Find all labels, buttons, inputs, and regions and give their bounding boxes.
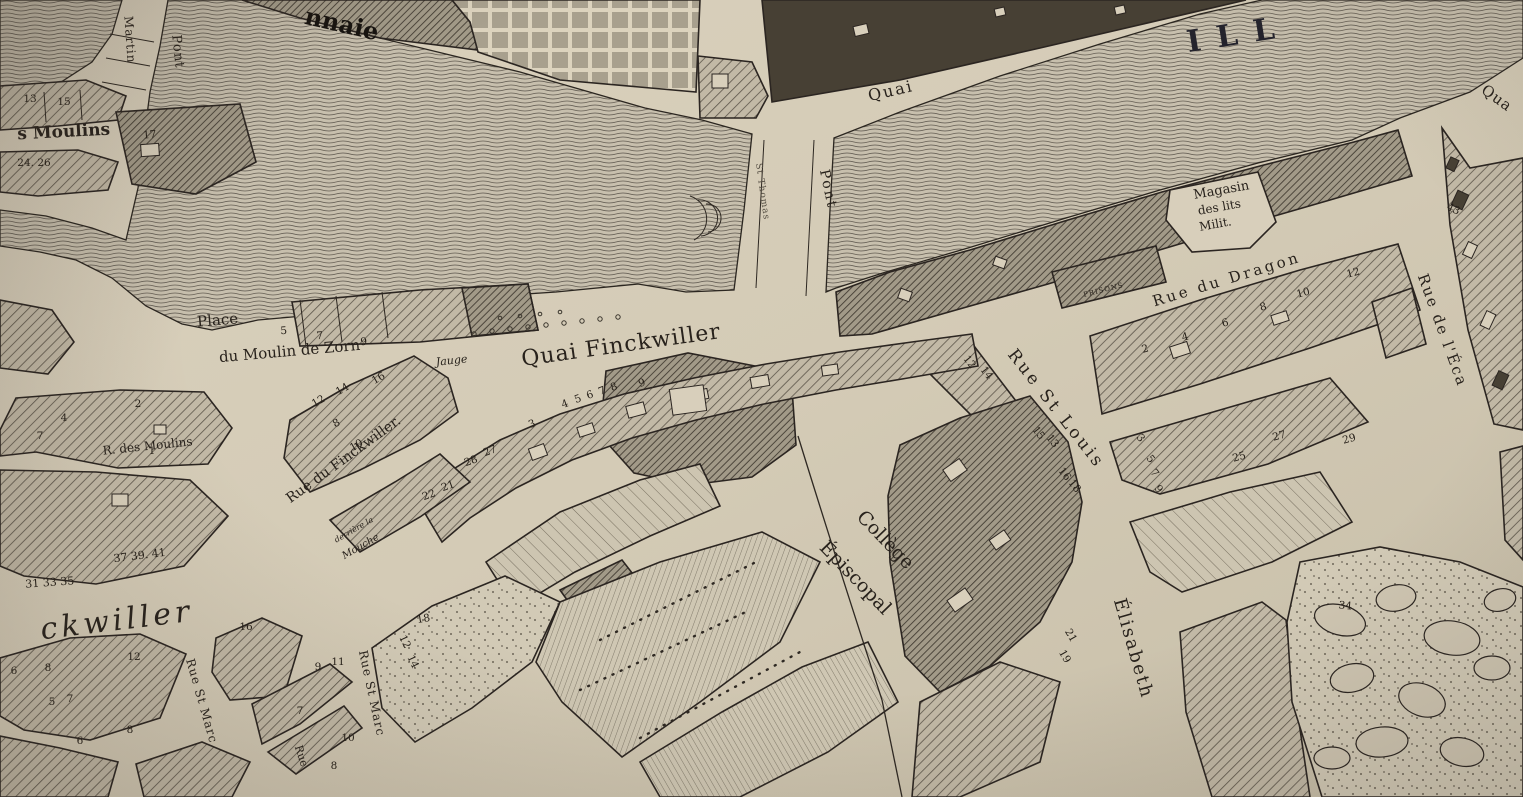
house-number: 24. 26 (17, 157, 51, 169)
house-number: 8 (331, 760, 338, 772)
house-number: 7 (297, 705, 304, 717)
house-number: 4 (61, 412, 68, 424)
house-number: 8 (45, 662, 52, 674)
house-number: 13 (23, 93, 36, 105)
house-number: 9 (360, 336, 368, 348)
house-number: 7 (37, 430, 44, 442)
house-number: 18 (416, 612, 431, 626)
house-number: 15 (57, 96, 70, 108)
house-number: 8 (127, 724, 134, 736)
historic-engraved-city-map: ILLQuaiQuaPontSt ThomasnnaiePontMartins … (0, 0, 1523, 797)
house-number: 10 (341, 732, 354, 744)
house-number: 1 (149, 445, 156, 457)
house-number: 17 (143, 128, 157, 141)
house-number: 9 (315, 661, 322, 673)
house-number: 11 (331, 656, 344, 668)
house-number: 6 (77, 735, 84, 747)
house-number: 5 (49, 696, 56, 708)
house-number: 7 (316, 330, 324, 342)
house-number: 2 (135, 398, 142, 410)
map-label-place-du-moulin-1: Place (196, 309, 239, 331)
house-number: 5 (280, 325, 288, 337)
house-number: 12 (127, 651, 140, 663)
map-canvas: ILLQuaiQuaPontSt ThomasnnaiePontMartins … (0, 0, 1523, 797)
house-number: 16 (239, 621, 253, 633)
house-number: 34 (1338, 599, 1353, 612)
house-number: 6 (11, 665, 18, 677)
house-number: 7 (67, 693, 74, 705)
